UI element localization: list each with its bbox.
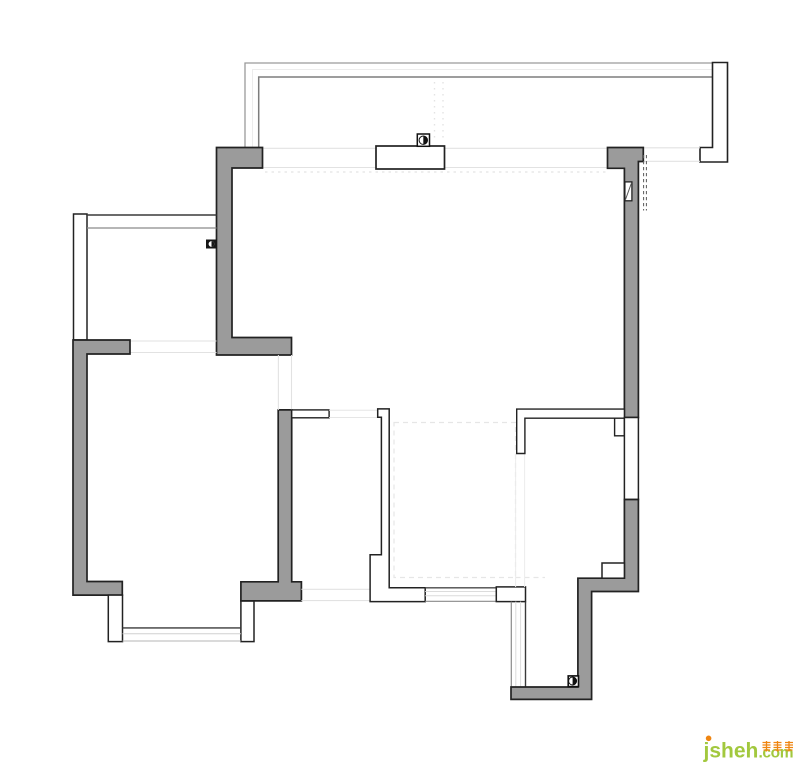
svg-text:jsheh: jsheh — [703, 739, 759, 762]
